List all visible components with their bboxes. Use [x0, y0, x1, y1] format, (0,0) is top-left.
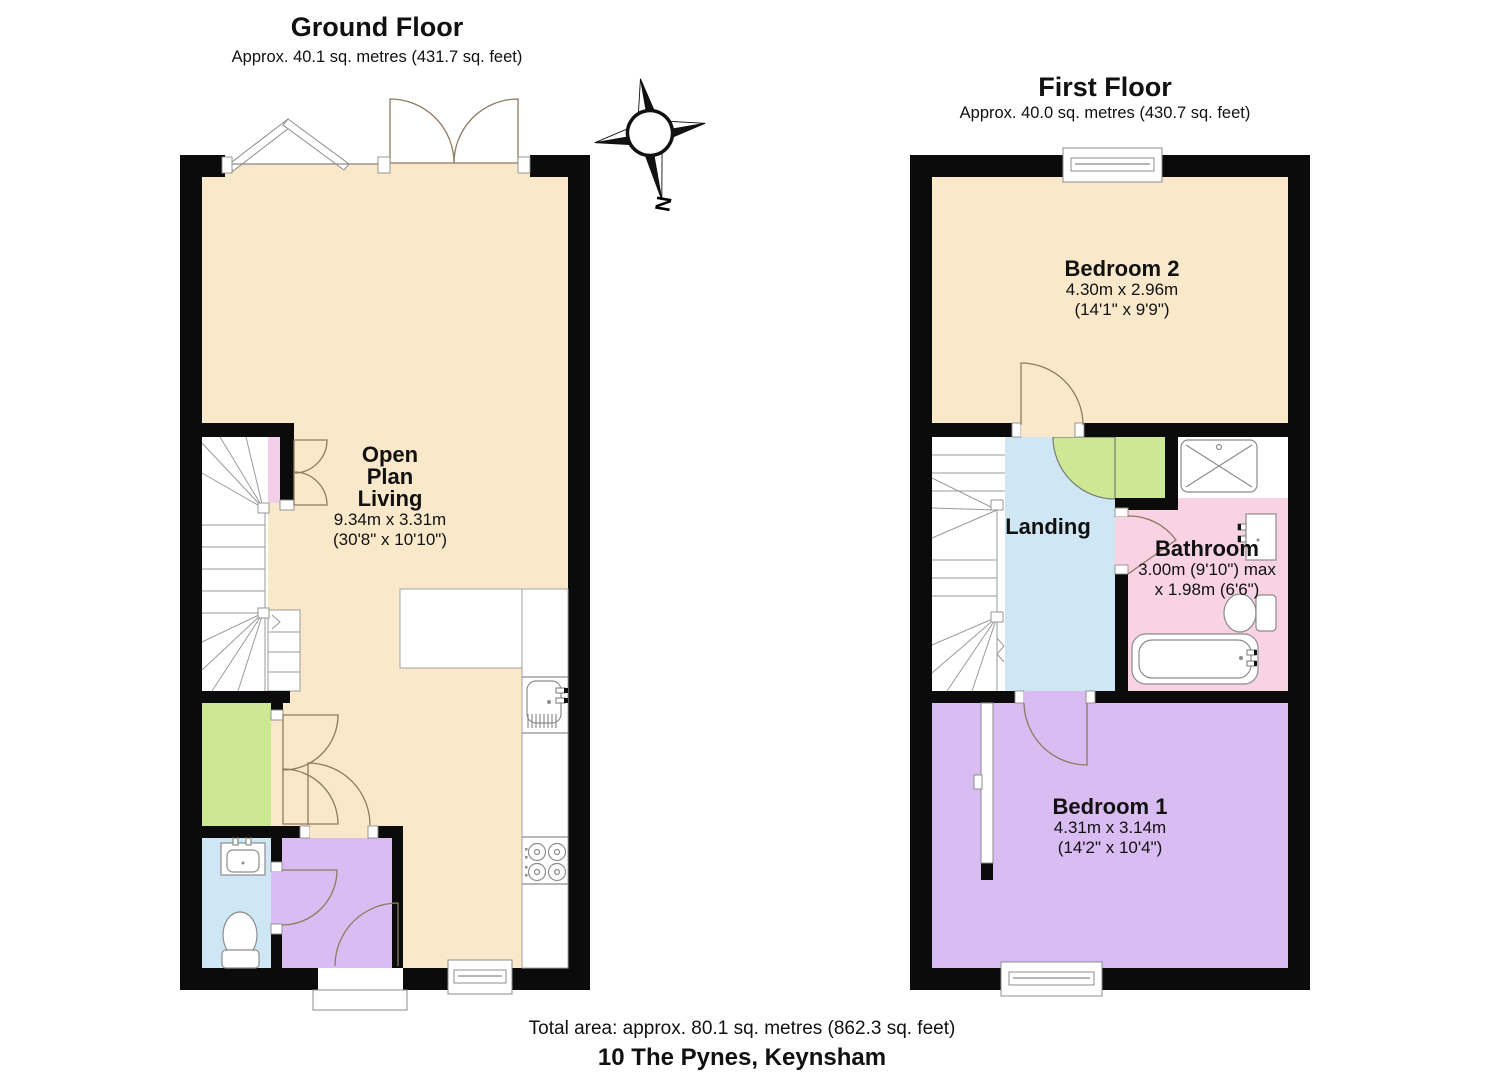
door-opening	[1024, 691, 1086, 703]
stairs-lower-flight	[268, 610, 300, 691]
address-text: 10 The Pynes, Keynsham	[598, 1044, 886, 1072]
door-jamb	[271, 710, 283, 720]
room-name: Landing	[1005, 516, 1091, 538]
room-dims: 4.30m x 2.96m (14'1" x 9'9")	[1065, 280, 1180, 320]
room-dims: 4.31m x 3.14m (14'2" x 10'4")	[1053, 818, 1168, 858]
bedroom2-label: Bedroom 2 4.30m x 2.96m (14'1" x 9'9")	[1065, 258, 1180, 320]
compass-rose: N	[585, 69, 717, 213]
room-name: Bedroom 2	[1065, 258, 1180, 280]
door-jamb	[378, 157, 390, 173]
door-jamb	[222, 157, 232, 173]
total-area-text: Total area: approx. 80.1 sq. metres (862…	[529, 1018, 956, 1040]
window-icon	[448, 960, 512, 994]
door-jamb	[271, 924, 282, 934]
first-floor-title: First Floor	[1038, 72, 1172, 103]
french-doors-icon	[390, 99, 518, 163]
door-jamb	[1075, 423, 1084, 437]
door-opening	[271, 872, 282, 924]
partition-handle	[974, 775, 982, 789]
door-jamb	[518, 157, 530, 173]
room-name: Bathroom	[1138, 538, 1276, 560]
room-name: Open Plan Living	[333, 444, 447, 510]
door-jamb	[300, 826, 310, 838]
door-jamb	[1115, 508, 1128, 517]
door-jamb	[271, 862, 282, 872]
understairs-cupboard-floor	[202, 703, 271, 826]
stair-newel	[258, 608, 269, 618]
door-opening	[1021, 423, 1075, 437]
room-dims: 9.34m x 3.31m (30'8" x 10'10")	[333, 510, 447, 550]
door-jamb	[1086, 691, 1095, 703]
bathroom-label: Bathroom 3.00m (9'10") max x 1.98m (6'6"…	[1138, 538, 1276, 600]
open-plan-living-label: Open Plan Living 9.34m x 3.31m (30'8" x …	[333, 444, 447, 550]
door-jamb	[368, 826, 378, 838]
room-dims: 3.00m (9'10") max x 1.98m (6'6")	[1138, 560, 1276, 600]
ground-floor-subtitle: Approx. 40.1 sq. metres (431.7 sq. feet)	[232, 48, 523, 67]
stairs-first-floor	[932, 437, 1005, 691]
first-floor-subtitle: Approx. 40.0 sq. metres (430.7 sq. feet)	[960, 104, 1251, 123]
stair-newel	[258, 503, 269, 513]
front-door-threshold	[318, 968, 403, 990]
window-icon	[1001, 962, 1102, 996]
stairs-cupboard-accent	[268, 437, 280, 503]
stair-newel	[991, 500, 1003, 510]
wardrobe-partition	[981, 703, 993, 863]
door-opening	[1115, 517, 1128, 565]
ground-floor-plan	[180, 99, 590, 1010]
bath-icon	[1132, 634, 1258, 684]
kitchen-counter	[522, 589, 568, 968]
toilet-icon	[222, 912, 259, 968]
stair-newel	[991, 612, 1003, 622]
stairs-ground-floor	[202, 437, 268, 691]
landing-label: Landing	[1005, 516, 1091, 538]
porch-step	[313, 990, 407, 1010]
door-jamb	[1015, 691, 1024, 703]
airing-cupboard-floor	[1115, 437, 1165, 498]
door-jamb	[1012, 423, 1021, 437]
door-jamb	[1115, 565, 1128, 574]
window-icon	[1063, 148, 1162, 182]
room-name: Bedroom 1	[1053, 796, 1168, 818]
ground-floor-title: Ground Floor	[291, 12, 463, 43]
shower-icon	[1181, 440, 1257, 492]
door-opening	[310, 826, 368, 838]
door-jamb	[280, 500, 294, 510]
floorplan-page: N Ground Floor Approx. 40.1 sq. metres (…	[0, 0, 1485, 1080]
north-label: N	[650, 194, 675, 213]
bedroom1-label: Bedroom 1 4.31m x 3.14m (14'2" x 10'4")	[1053, 796, 1168, 858]
